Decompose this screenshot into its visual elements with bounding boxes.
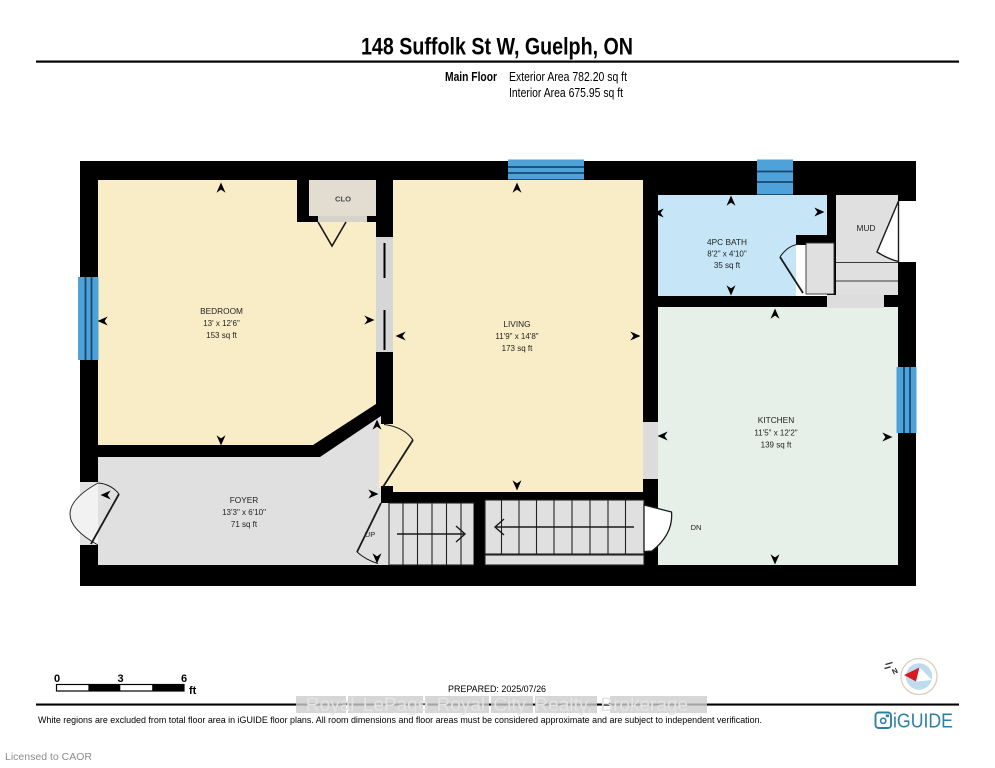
- svg-text:71 sq ft: 71 sq ft: [231, 520, 258, 529]
- svg-text:3: 3: [117, 673, 123, 685]
- svg-text:CLO: CLO: [335, 195, 351, 204]
- svg-text:Royal LePage Royal City Realty: Royal LePage Royal City Realty, Brokerag…: [306, 695, 688, 716]
- svg-text:Exterior Area 782.20 sq ft: Exterior Area 782.20 sq ft: [509, 69, 627, 84]
- svg-text:iGUIDE: iGUIDE: [893, 711, 953, 733]
- svg-text:6: 6: [181, 673, 187, 685]
- svg-text:PREPARED: 2025/07/26: PREPARED: 2025/07/26: [448, 684, 546, 695]
- svg-text:KITCHEN: KITCHEN: [758, 415, 794, 425]
- svg-text:White regions are excluded fro: White regions are excluded from total fl…: [38, 715, 762, 725]
- svg-text:4PC BATH: 4PC BATH: [707, 237, 747, 247]
- svg-text:MUD: MUD: [857, 223, 876, 233]
- svg-text:Interior Area 675.95 sq ft: Interior Area 675.95 sq ft: [509, 85, 623, 100]
- svg-text:148 Suffolk St W, Guelph, ON: 148 Suffolk St W, Guelph, ON: [361, 34, 633, 61]
- svg-text:153 sq ft: 153 sq ft: [206, 331, 237, 340]
- svg-text:35 sq ft: 35 sq ft: [714, 261, 741, 270]
- svg-text:FOYER: FOYER: [230, 495, 259, 505]
- svg-text:Licensed to CAOR: Licensed to CAOR: [5, 751, 92, 763]
- svg-text:LIVING: LIVING: [503, 319, 530, 329]
- svg-text:13'3" x 6'10": 13'3" x 6'10": [222, 508, 266, 517]
- svg-text:BEDROOM: BEDROOM: [200, 306, 243, 316]
- svg-text:8'2" x 4'10": 8'2" x 4'10": [707, 250, 747, 259]
- svg-text:ft: ft: [189, 685, 197, 697]
- svg-text:DN: DN: [691, 523, 702, 532]
- svg-text:13' x 12'6": 13' x 12'6": [203, 319, 240, 328]
- svg-text:11'9" x 14'8": 11'9" x 14'8": [495, 332, 538, 341]
- svg-text:UP: UP: [365, 530, 375, 539]
- svg-text:139 sq ft: 139 sq ft: [761, 441, 792, 450]
- svg-text:11'5" x 12'2": 11'5" x 12'2": [754, 429, 797, 438]
- svg-text:173 sq ft: 173 sq ft: [502, 344, 533, 353]
- svg-text:Main Floor: Main Floor: [445, 69, 497, 84]
- svg-text:0: 0: [54, 673, 60, 685]
